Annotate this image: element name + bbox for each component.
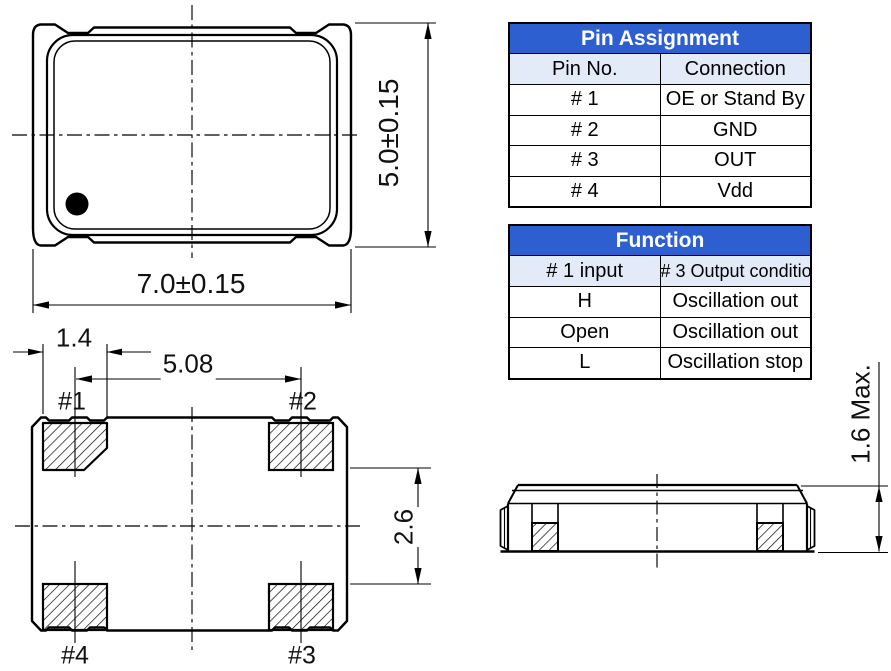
- pin-3-number-cell: # 3: [509, 146, 660, 177]
- pin-1-connection-cell: OE or Stand By: [660, 85, 811, 116]
- table-row: # 4 Vdd: [509, 176, 811, 207]
- pin-2-connection-cell: GND: [660, 115, 811, 146]
- pin-4-number-cell: # 4: [509, 176, 660, 207]
- dim-pitch-arrow-right: [285, 375, 301, 382]
- table-row: H Oscillation out: [509, 287, 811, 318]
- pad-center-guides: [75, 367, 301, 643]
- table-row: # 2 GND: [509, 115, 811, 146]
- top-view-height-dim-label: 5.0±0.15: [373, 77, 405, 190]
- dim-padwidth-arrow-right: [107, 349, 122, 356]
- table-row: # 3 OUT: [509, 146, 811, 177]
- pad-4-label: #4: [61, 642, 89, 671]
- pin-4-connection-cell: Vdd: [660, 176, 811, 207]
- bottom-view-pad-gap-dim-label: 2.6: [389, 507, 420, 547]
- input-column-header: # 1 input: [509, 256, 660, 287]
- pin-assignment-title-row: Pin Assignment: [509, 23, 811, 54]
- pad-3-label: #3: [288, 642, 316, 671]
- bottom-view-pad-width-dim-label: 1.4: [54, 323, 94, 354]
- pin-2-number-cell: # 2: [509, 115, 660, 146]
- top-view-width-dim-label: 7.0±0.15: [135, 268, 248, 300]
- output-condition-column-header: # 3 Output condition: [660, 256, 811, 287]
- dim-padwidth-arrow-left: [28, 349, 43, 356]
- datasheet-page: 7.0±0.15 5.0±0.15 1.4 5.08 2.6 1.6 Max. …: [0, 0, 891, 671]
- pin-assignment-table: Pin Assignment Pin No. Connection # 1 OE…: [508, 22, 812, 208]
- function-h-input-cell: H: [509, 287, 660, 318]
- side-view-pad-left: [532, 523, 558, 551]
- dim-height-arrow-top: [424, 23, 431, 39]
- table-row: Open Oscillation out: [509, 317, 811, 348]
- pin-assignment-header-row: Pin No. Connection: [509, 54, 811, 85]
- function-header-row: # 1 input # 3 Output condition: [509, 256, 811, 287]
- dim-padgap-arrow-bottom: [414, 568, 421, 584]
- table-row: # 1 OE or Stand By: [509, 85, 811, 116]
- dim-padgap-arrow-top: [414, 468, 421, 484]
- function-h-output-cell: Oscillation out: [660, 287, 811, 318]
- pin-no-column-header: Pin No.: [509, 54, 660, 85]
- dim-width-arrow-left: [33, 301, 49, 308]
- dim-pitch-arrow-left: [76, 375, 92, 382]
- dim-thickness-arrow-top: [875, 487, 882, 503]
- function-l-output-cell: Oscillation stop: [660, 348, 811, 379]
- pin-3-connection-cell: OUT: [660, 146, 811, 177]
- connection-column-header: Connection: [660, 54, 811, 85]
- dim-width-arrow-right: [335, 301, 351, 308]
- dim-height-arrow-bottom: [424, 231, 431, 247]
- function-open-input-cell: Open: [509, 317, 660, 348]
- pad-2-label: #2: [289, 388, 317, 417]
- side-view-height-dim-label: 1.6 Max.: [846, 362, 877, 466]
- pin-assignment-title: Pin Assignment: [509, 23, 811, 54]
- pin-1-number-cell: # 1: [509, 85, 660, 116]
- pin1-marker-dot: [66, 193, 89, 216]
- function-l-input-cell: L: [509, 348, 660, 379]
- side-view-pad-right: [757, 523, 783, 551]
- function-open-output-cell: Oscillation out: [660, 317, 811, 348]
- pad-1-label: #1: [58, 388, 86, 417]
- function-title: Function: [509, 225, 811, 256]
- bottom-view-pad-pitch-dim-label: 5.08: [161, 349, 216, 380]
- function-title-row: Function: [509, 225, 811, 256]
- table-row: L Oscillation stop: [509, 348, 811, 379]
- dim-thickness-arrow-bottom: [875, 536, 882, 552]
- function-table: Function # 1 input # 3 Output condition …: [508, 224, 812, 380]
- side-view-drawing: [501, 362, 889, 568]
